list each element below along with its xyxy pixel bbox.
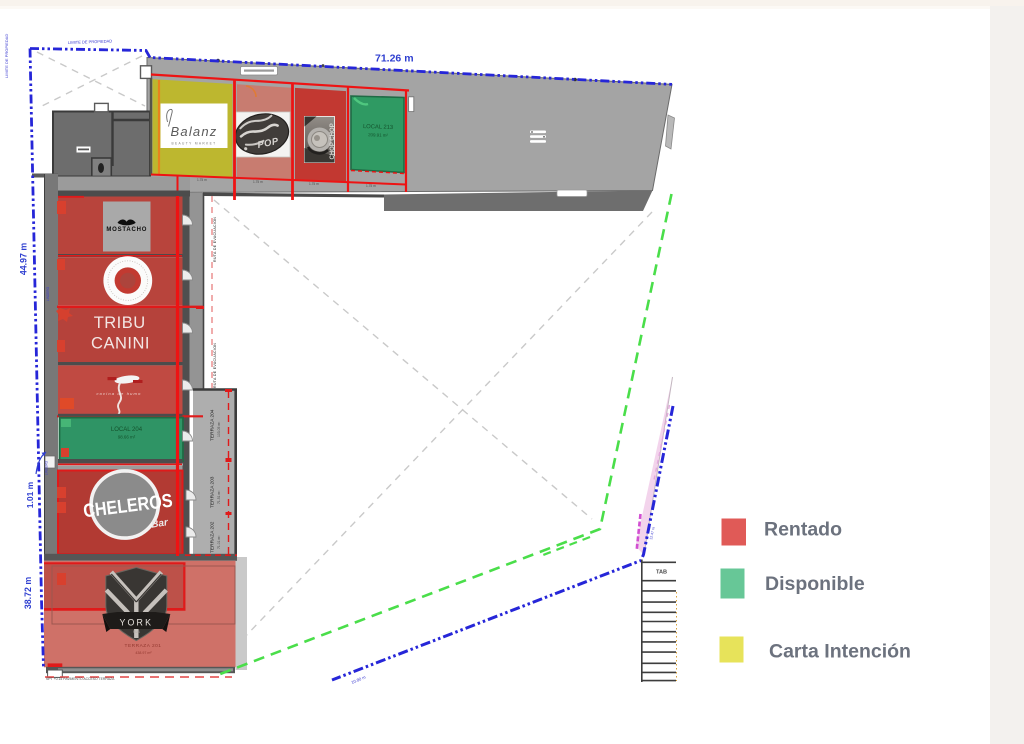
svg-text:NPT +0.15 PAVIMENTO ACCESO TER: NPT +0.15 PAVIMENTO ACCESO TERRAZA xyxy=(46,677,115,681)
svg-text:438.97 m²: 438.97 m² xyxy=(135,651,152,655)
svg-text:CANINI: CANINI xyxy=(91,335,150,353)
svg-text:TRIBU: TRIBU xyxy=(94,314,146,332)
svg-text:LOCAL 204: LOCAL 204 xyxy=(111,427,143,433)
svg-text:LOCAL 213: LOCAL 213 xyxy=(363,124,393,131)
svg-text:LINDERO: LINDERO xyxy=(45,460,49,475)
svg-text:1.75 m: 1.75 m xyxy=(253,180,263,184)
svg-text:71.26 m: 71.26 m xyxy=(375,53,414,65)
svg-text:1.75 m: 1.75 m xyxy=(366,184,376,188)
svg-text:71.51 m²: 71.51 m² xyxy=(217,490,221,504)
svg-text:Balanz: Balanz xyxy=(171,124,218,139)
svg-text:38.72 m: 38.72 m xyxy=(23,577,33,609)
svg-text:LIMITE DE PROPIEDAD: LIMITE DE PROPIEDAD xyxy=(4,34,9,78)
svg-text:BEAUTY MARKET: BEAUTY MARKET xyxy=(171,142,216,146)
svg-text:Carta Intención: Carta Intención xyxy=(769,641,911,663)
svg-text:YORK: YORK xyxy=(119,618,153,628)
svg-text:RUTA DE EVACUACION: RUTA DE EVACUACION xyxy=(213,343,217,388)
svg-text:44.97 m: 44.97 m xyxy=(19,243,29,275)
svg-text:1.75 m: 1.75 m xyxy=(197,178,207,182)
svg-text:98.66 m²: 98.66 m² xyxy=(118,435,136,440)
svg-text:Disponible: Disponible xyxy=(765,573,865,595)
svg-text:RUTA DE EVACUACION: RUTA DE EVACUACION xyxy=(213,217,217,262)
svg-text:Rentado: Rentado xyxy=(764,519,842,541)
svg-text:TAB: TAB xyxy=(656,570,667,576)
svg-text:LINDERO: LINDERO xyxy=(46,286,50,301)
svg-text:TERRAZA 204: TERRAZA 204 xyxy=(210,409,216,441)
svg-text:1.75 m: 1.75 m xyxy=(309,182,319,186)
svg-text:TERRAZA 201: TERRAZA 201 xyxy=(125,643,162,649)
svg-text:MOSTACHO: MOSTACHO xyxy=(106,227,147,233)
svg-text:CHOP CHOP: CHOP CHOP xyxy=(330,123,336,159)
svg-text:TERRAZA 203: TERRAZA 203 xyxy=(210,476,216,508)
svg-text:TERRAZA 202: TERRAZA 202 xyxy=(210,521,216,553)
svg-text:209.91 m²: 209.91 m² xyxy=(368,132,388,138)
svg-text:71.01 m²: 71.01 m² xyxy=(217,535,221,549)
svg-text:cocina de humo: cocina de humo xyxy=(96,391,141,396)
svg-text:103.05 m²: 103.05 m² xyxy=(217,421,221,437)
svg-text:PUB: PUB xyxy=(133,630,140,634)
svg-text:1.01 m: 1.01 m xyxy=(25,481,35,508)
